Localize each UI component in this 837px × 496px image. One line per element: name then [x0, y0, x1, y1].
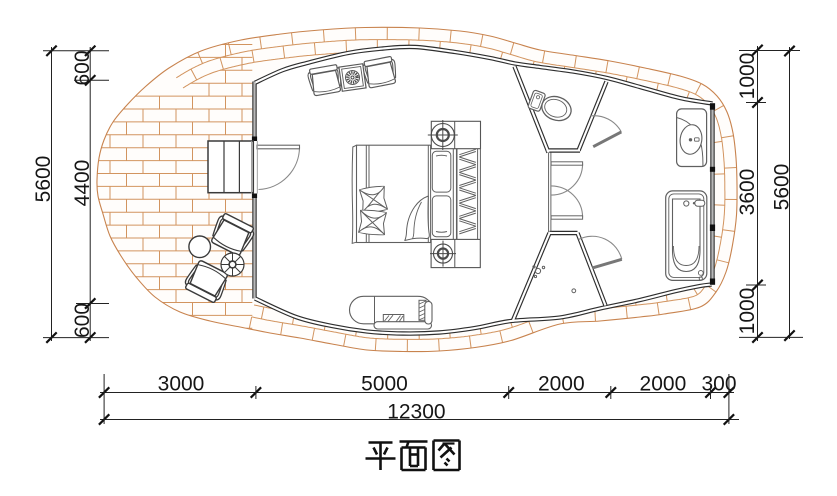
svg-text:12300: 12300 [387, 401, 445, 424]
svg-text:5600: 5600 [771, 164, 794, 211]
svg-text:5600: 5600 [32, 156, 55, 203]
svg-text:300: 300 [701, 373, 736, 396]
svg-text:1000: 1000 [736, 53, 759, 100]
svg-text:1000: 1000 [736, 288, 759, 335]
svg-text:4400: 4400 [71, 160, 94, 207]
svg-text:2000: 2000 [538, 373, 585, 396]
svg-text:3000: 3000 [158, 373, 205, 396]
svg-text:2000: 2000 [640, 373, 687, 396]
svg-text:3600: 3600 [736, 169, 759, 216]
svg-text:5000: 5000 [361, 373, 408, 396]
svg-text:600: 600 [71, 303, 94, 338]
